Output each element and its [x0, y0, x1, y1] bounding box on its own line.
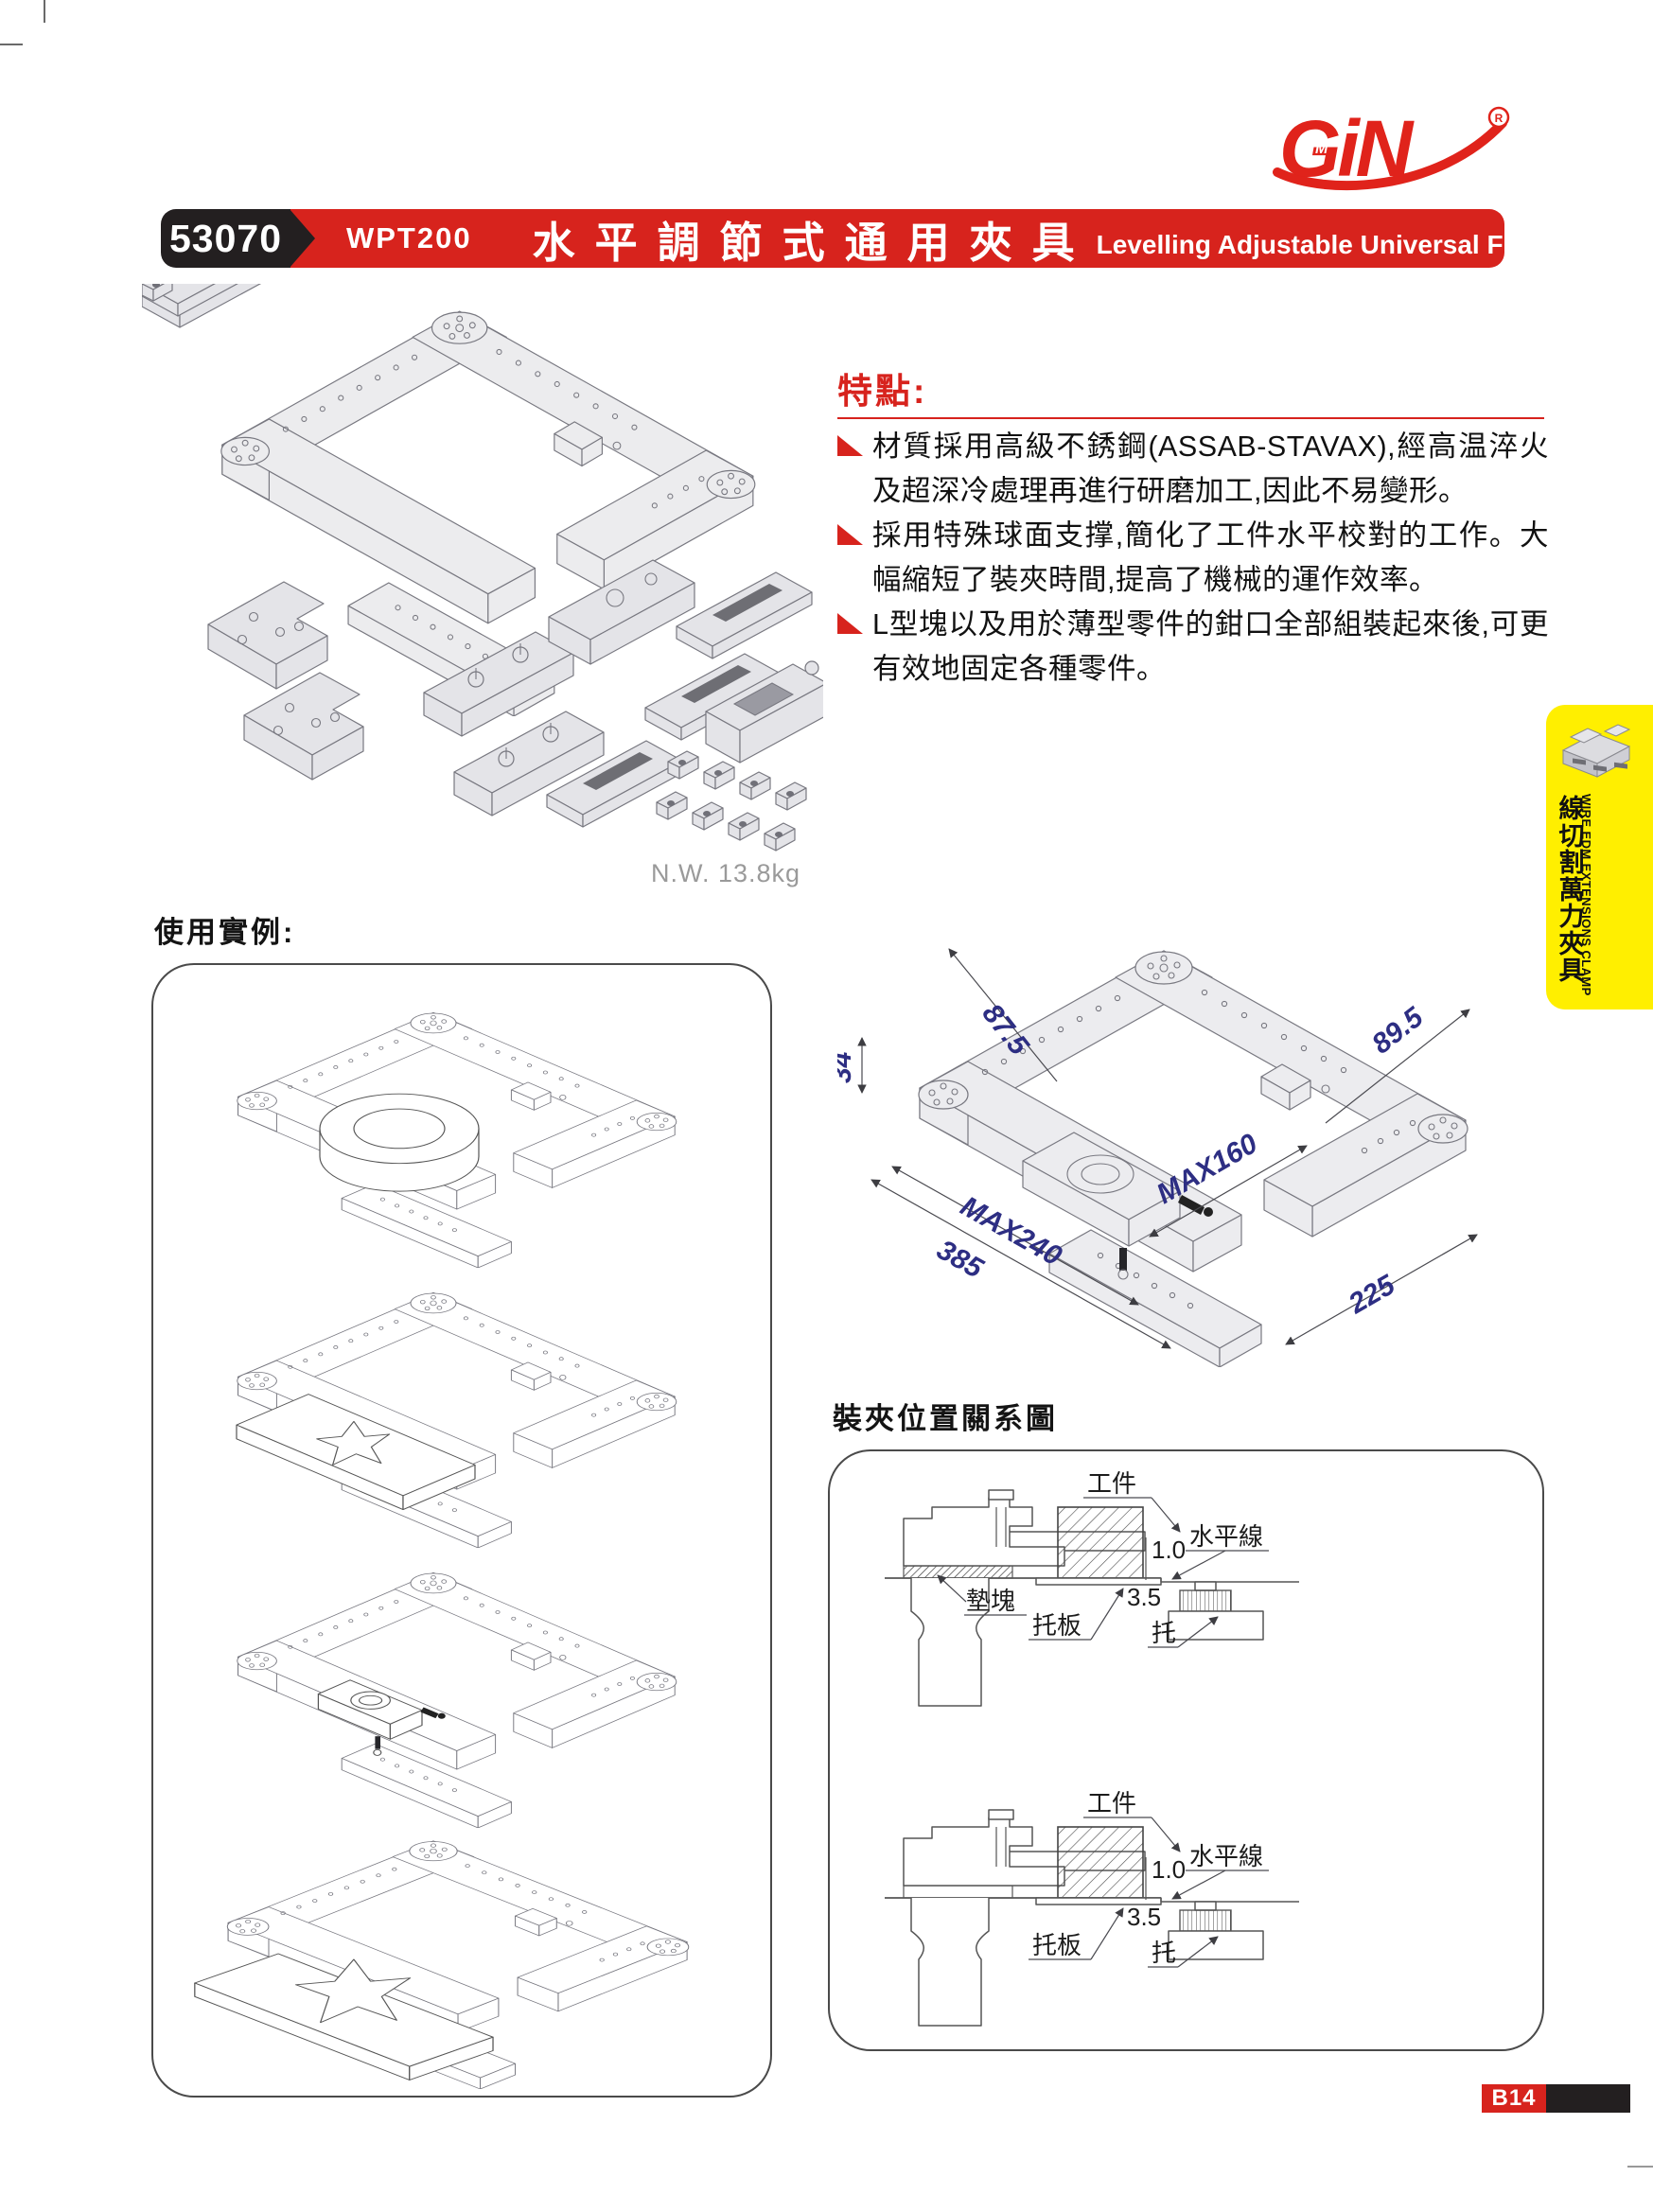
- svg-text:M: M: [1315, 141, 1328, 157]
- label-workpiece: 工件: [1087, 1471, 1136, 1498]
- features-underline: [837, 417, 1544, 419]
- registered-mark: R: [1495, 112, 1504, 125]
- side-tab-wire-edm-clamp: 線切割萬力夾具 WIRE EDM EXTENSIONS CLAMP: [1546, 705, 1653, 1009]
- dim-label-225: 225: [1343, 1269, 1401, 1321]
- feature-item: L型塊以及用於薄型零件的鉗口全部組裝起來後,可更有效地固定各種零件。: [837, 603, 1549, 692]
- label-plate: 托板: [1032, 1611, 1081, 1640]
- crop-mark: [44, 0, 45, 23]
- label-plate: 托板: [1032, 1931, 1081, 1959]
- header-bar: WPT200 水平調節式通用夾具 Levelling Adjustable Un…: [284, 209, 1504, 268]
- label-level-line: 水平線: [1189, 1842, 1263, 1870]
- product-photo: [142, 284, 823, 851]
- label-support: 托: [1152, 1619, 1176, 1647]
- net-weight-caption: N.W. 13.8kg: [651, 859, 800, 888]
- triangle-bullet-icon: [837, 524, 863, 545]
- usage-drawing-small-vise: [172, 1555, 732, 1828]
- page-title-zh: 水平調節式通用夾具: [533, 208, 1095, 270]
- product-code-tab: 53070: [161, 209, 290, 268]
- label-gap-1-0: 1.0: [1152, 1855, 1186, 1884]
- features-heading: 特點:: [837, 362, 927, 413]
- feature-text: L型塊以及用於薄型零件的鉗口全部組裝起來後,可更有效地固定各種零件。: [872, 608, 1549, 685]
- crop-mark: [0, 44, 23, 45]
- crop-mark: [1627, 2166, 1653, 2168]
- usage-examples-heading: 使用實例:: [154, 908, 295, 951]
- triangle-bullet-icon: [837, 435, 863, 456]
- side-tab-label-en: WIRE EDM EXTENSIONS CLAMP: [1579, 794, 1593, 996]
- label-workpiece: 工件: [1087, 1791, 1136, 1817]
- page-number: B14: [1491, 2085, 1536, 2112]
- catalog-page: GiN M R WPT200 水平調節式通用夾具 Levelling Adjus…: [0, 0, 1653, 2212]
- page-title-en: Levelling Adjustable Universal Fixture: [1097, 230, 1575, 260]
- code-tab-arrow: [290, 209, 315, 268]
- label-offset-3-5: 3.5: [1127, 1903, 1161, 1931]
- usage-drawing-star-plate: [172, 1275, 732, 1548]
- clamp-position-heading: 裝夾位置關系圖: [833, 1395, 1058, 1437]
- feature-text: 材質採用高級不銹鋼(ASSAB-STAVAX),經高温淬火及超深冷處理再進行研磨…: [872, 430, 1549, 507]
- page-badge: B14: [1482, 2084, 1546, 2113]
- label-level-line: 水平線: [1189, 1522, 1263, 1551]
- feature-item: 採用特殊球面支撑,簡化了工件水平校對的工作。大幅縮短了裝夾時間,提高了機械的運作…: [837, 514, 1549, 603]
- label-support: 托: [1152, 1939, 1176, 1967]
- clamp-thumbnail-icon: [1556, 718, 1639, 786]
- logo-text: GiN: [1279, 104, 1416, 193]
- usage-drawing-large-star-plate: [159, 1824, 747, 2089]
- dimension-drawing: 87.5 34 89.5 MAX160 MAX240 385 225: [837, 922, 1542, 1369]
- label-offset-3-5: 3.5: [1127, 1583, 1161, 1611]
- usage-drawing-ring-workpiece: [172, 995, 732, 1268]
- model-number: WPT200: [346, 221, 472, 255]
- clamp-section-with-spacer: 工件 水平線 1.0 3.5 墊塊 托板 托: [847, 1471, 1528, 1717]
- label-spacer: 墊塊: [966, 1587, 1015, 1615]
- clamp-section-without-spacer: 工件 水平線 1.0 3.5 托板 托: [847, 1791, 1528, 2037]
- product-code: 53070: [169, 217, 282, 261]
- gin-logo: GiN M R: [1266, 97, 1514, 202]
- page-badge-bar: [1546, 2084, 1630, 2113]
- dim-label-34: 34: [837, 1051, 857, 1083]
- dim-label-89-5: 89.5: [1366, 1001, 1430, 1061]
- features-list: 材質採用高級不銹鋼(ASSAB-STAVAX),經高温淬火及超深冷處理再進行研磨…: [837, 425, 1549, 692]
- feature-item: 材質採用高級不銹鋼(ASSAB-STAVAX),經高温淬火及超深冷處理再進行研磨…: [837, 425, 1549, 514]
- triangle-bullet-icon: [837, 613, 863, 634]
- label-gap-1-0: 1.0: [1152, 1536, 1186, 1564]
- feature-text: 採用特殊球面支撑,簡化了工件水平校對的工作。大幅縮短了裝夾時間,提高了機械的運作…: [872, 519, 1549, 596]
